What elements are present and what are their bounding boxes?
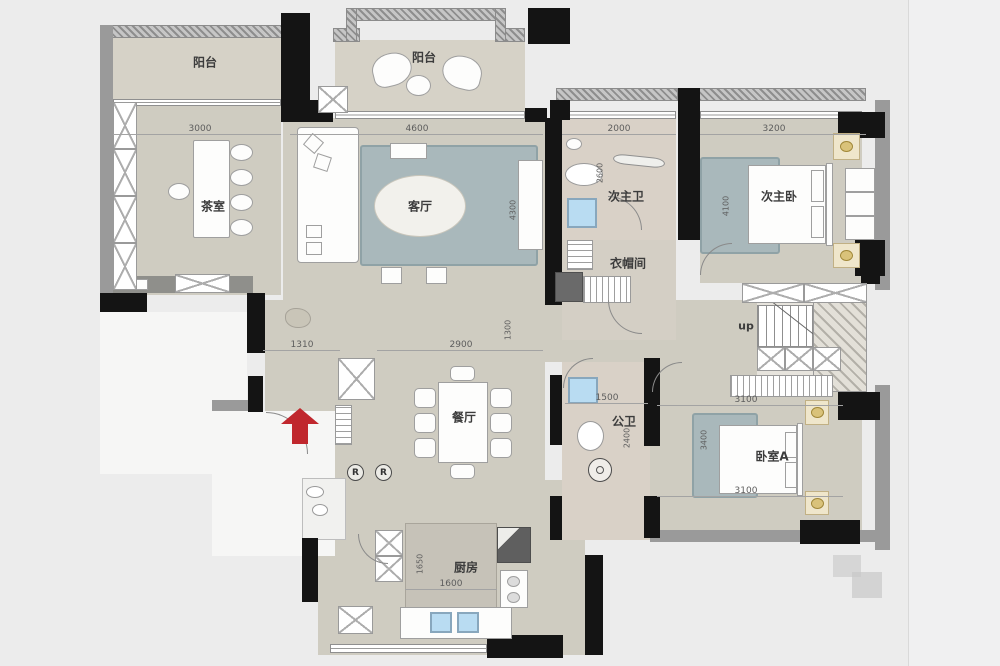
wall — [302, 538, 318, 602]
wall — [644, 358, 660, 446]
stairs-cabinet — [813, 347, 841, 371]
refrigerator-symbol: R — [347, 464, 364, 481]
tea-cabinet — [113, 243, 137, 290]
dimension-line — [113, 134, 281, 135]
dim-bedroom-a-width-top: 3100 — [735, 395, 758, 405]
dim-bedroom-a-width-bottom: 3100 — [735, 486, 758, 496]
exterior-wall — [556, 88, 678, 101]
dim-second-bath-width: 2000 — [608, 124, 631, 134]
kitchen-sink — [457, 612, 479, 633]
dim-living-width: 4600 — [406, 124, 429, 134]
dimension-line — [405, 589, 497, 590]
dim-second-bedroom-depth: 4100 — [722, 196, 731, 216]
nightstand-lamp-icon — [811, 407, 824, 418]
wall — [644, 496, 660, 538]
nightstand-lamp-icon — [811, 498, 824, 509]
tea-table — [193, 140, 230, 238]
dim-second-bath-depth: 2600 — [596, 163, 605, 183]
tea-chair — [230, 194, 253, 211]
nightstand — [805, 400, 829, 425]
second-bath-window — [562, 111, 676, 119]
dim-kitchen-depth: 1650 — [416, 554, 425, 574]
label-bedroom-a: 卧室A — [755, 448, 788, 465]
stove-burner — [507, 576, 520, 587]
bed-pillow — [811, 170, 824, 202]
label-second-master-bedroom: 次主卧 — [761, 188, 797, 205]
dining-chair — [490, 388, 512, 408]
tea-cabinet — [113, 196, 137, 243]
nightstand — [805, 491, 829, 515]
dimension-line — [562, 134, 676, 135]
nightstand — [833, 133, 860, 160]
side-console — [518, 160, 543, 250]
kitchen-window — [330, 644, 487, 653]
wall — [247, 293, 265, 353]
balcony-table — [406, 75, 431, 96]
dimension-line — [565, 403, 648, 404]
dimension-line — [377, 350, 543, 351]
dim-living-depth: 4300 — [509, 200, 518, 220]
sofa-pillow — [306, 242, 322, 255]
dim-public-bath-width: 1500 — [596, 393, 619, 403]
wall — [550, 100, 570, 120]
stove-burner — [507, 592, 520, 603]
kitchen-corner-unit — [497, 527, 531, 563]
exterior-wall-left — [100, 25, 113, 303]
wall — [528, 8, 570, 44]
wardrobe — [845, 168, 875, 192]
dining-chair — [490, 413, 512, 433]
entry-arrow-head — [281, 408, 319, 424]
stairs-cabinet — [757, 347, 785, 371]
refrigerator-letter: R — [380, 468, 387, 478]
washer-drum — [596, 466, 604, 474]
dim-dining-width: 2900 — [450, 340, 473, 350]
bedroom-a-wardrobe — [730, 375, 833, 397]
label-living-room: 客厅 — [408, 198, 432, 215]
floorplan-page: { "rooms": { "balcony_left": "阳台", "balc… — [0, 0, 1000, 666]
label-stairs-up: up — [738, 320, 754, 333]
dim-bedroom-a-depth: 3400 — [700, 430, 709, 450]
wall — [248, 376, 263, 412]
hall-cabinet — [804, 283, 867, 303]
washing-machine — [318, 86, 348, 113]
tea-chair — [230, 219, 253, 236]
dim-kitchen-width: 1600 — [440, 579, 463, 589]
label-dining-room: 餐厅 — [452, 409, 476, 426]
cloak-shoe-rack — [567, 240, 593, 270]
wall — [550, 375, 562, 445]
page-right-panel — [909, 0, 1000, 666]
hall-cabinet — [742, 283, 804, 303]
dining-chair — [414, 438, 436, 458]
dining-chair — [414, 388, 436, 408]
wardrobe — [845, 216, 875, 240]
dim-foyer-width: 1310 — [291, 340, 314, 350]
tea-cabinet — [113, 149, 137, 196]
label-second-master-bath: 次主卫 — [608, 188, 644, 205]
label-cloakroom: 衣帽间 — [610, 255, 646, 272]
tea-counter-cabinet — [175, 274, 230, 293]
wall — [861, 270, 880, 284]
nightstand-lamp-icon — [840, 141, 853, 152]
balcony-left-window — [113, 99, 281, 106]
toilet — [577, 421, 604, 451]
dining-chair — [450, 464, 475, 479]
wardrobe — [845, 192, 875, 216]
wall — [838, 392, 880, 420]
tv-bench — [390, 143, 427, 159]
kitchen-sink — [430, 612, 452, 633]
stool — [426, 267, 447, 284]
laundry-fixture — [306, 486, 324, 498]
wall — [678, 88, 700, 240]
dimension-line — [700, 134, 866, 135]
dimension-line — [290, 134, 543, 135]
label-kitchen: 厨房 — [454, 559, 478, 576]
shoe-cabinet — [338, 358, 375, 400]
tea-chair — [230, 144, 253, 161]
wall — [550, 496, 562, 540]
wall — [585, 555, 603, 655]
label-public-bath: 公卫 — [612, 413, 636, 430]
washing-machine — [588, 458, 612, 482]
dimension-line — [657, 496, 843, 497]
laundry-fixture — [312, 504, 328, 516]
exterior-wall — [106, 25, 283, 38]
dim-hall-depth: 1300 — [504, 320, 513, 340]
stairs-cabinet — [785, 347, 813, 371]
exterior-wall — [698, 88, 866, 101]
bed-headboard — [826, 163, 833, 246]
dim-tea-width: 3000 — [189, 124, 212, 134]
tea-chair — [168, 183, 190, 200]
cloak-cabinet — [555, 272, 583, 302]
tea-cabinet — [113, 102, 137, 149]
foyer-wall-stub — [212, 400, 250, 411]
wall — [525, 108, 547, 122]
label-balcony-top: 阳台 — [412, 49, 436, 66]
kitchen-counter — [400, 607, 512, 639]
bed-pillow — [811, 206, 824, 238]
exterior-wall — [346, 8, 506, 21]
shower-head — [566, 138, 582, 150]
balcony-top-window — [335, 111, 525, 119]
entry-arrow-stem — [292, 424, 308, 444]
sofa-pillow — [306, 225, 322, 238]
stool — [381, 267, 402, 284]
label-balcony-left: 阳台 — [193, 54, 217, 71]
wall — [100, 293, 147, 312]
bed-headboard — [797, 423, 803, 496]
dining-chair — [490, 438, 512, 458]
nightstand-lamp-icon — [840, 250, 853, 261]
dining-chair — [450, 366, 475, 381]
refrigerator-symbol: R — [375, 464, 392, 481]
cloak-hanger-rack — [583, 276, 631, 303]
wall — [800, 520, 860, 544]
tea-chair — [230, 169, 253, 186]
exterior-wall — [495, 8, 506, 42]
plant — [285, 308, 311, 328]
nightstand — [833, 243, 860, 268]
exterior-wall — [346, 8, 357, 42]
label-tea-room: 茶室 — [201, 198, 225, 215]
dimension-line — [657, 405, 843, 406]
bathroom-sink — [567, 198, 597, 228]
watermark-artifact — [852, 572, 882, 598]
entry-side-cabinet — [335, 405, 352, 445]
dim-second-bedroom-width: 3200 — [763, 124, 786, 134]
kitchen-cabinet — [338, 606, 373, 634]
dim-public-bath-depth: 2400 — [623, 428, 632, 448]
dimension-line — [263, 350, 340, 351]
bed-pillow — [785, 462, 797, 488]
refrigerator-letter: R — [352, 468, 359, 478]
dining-chair — [414, 413, 436, 433]
